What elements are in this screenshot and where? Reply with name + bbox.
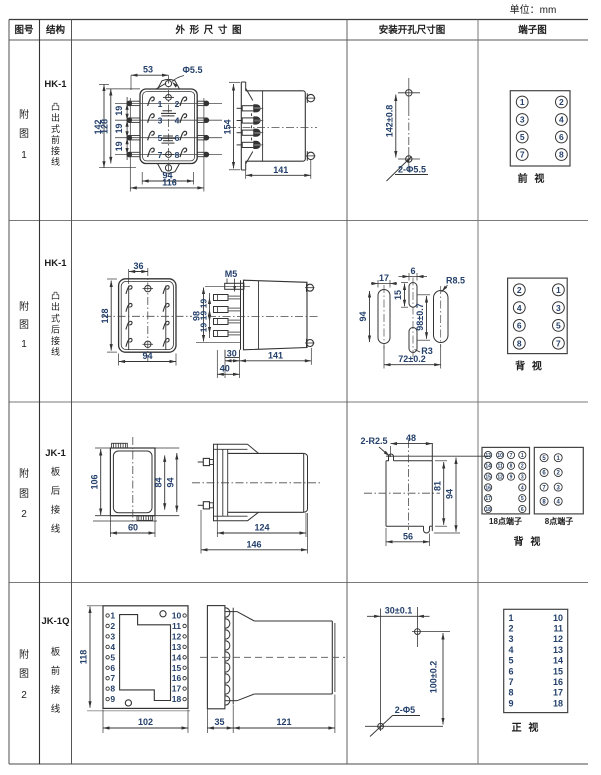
svg-text:128: 128: [100, 308, 110, 323]
svg-text:2: 2: [559, 97, 564, 107]
svg-text:102: 102: [138, 717, 153, 727]
svg-text:94: 94: [358, 311, 368, 321]
svg-text:9: 9: [510, 475, 513, 481]
svg-text:图: 图: [19, 128, 29, 140]
svg-text:35: 35: [214, 717, 224, 727]
svg-text:3: 3: [509, 634, 514, 644]
svg-text:13: 13: [553, 645, 563, 655]
svg-text:凸: 凸: [51, 102, 60, 112]
svg-text:5: 5: [520, 132, 525, 142]
svg-text:19: 19: [114, 106, 124, 116]
svg-text:30: 30: [227, 348, 237, 358]
svg-text:15: 15: [393, 290, 403, 300]
svg-text:4: 4: [175, 116, 180, 126]
svg-text:前 视: 前 视: [518, 172, 547, 185]
svg-text:1: 1: [21, 339, 27, 350]
svg-text:94: 94: [166, 477, 176, 487]
svg-text:4: 4: [517, 303, 522, 313]
svg-text:84: 84: [153, 477, 163, 487]
svg-text:凸: 凸: [51, 291, 60, 301]
svg-text:8: 8: [509, 688, 514, 698]
svg-text:5: 5: [556, 321, 561, 331]
svg-text:72±0.2: 72±0.2: [398, 354, 425, 364]
svg-text:14: 14: [172, 652, 182, 662]
svg-text:94: 94: [445, 489, 455, 499]
svg-text:141: 141: [273, 165, 288, 175]
svg-text:116: 116: [162, 178, 177, 188]
svg-text:端子图: 端子图: [518, 24, 547, 36]
svg-text:1: 1: [21, 150, 27, 161]
svg-text:2: 2: [110, 621, 115, 631]
svg-text:2: 2: [517, 285, 522, 295]
svg-text:外 形 尺 寸 图: 外 形 尺 寸 图: [174, 24, 242, 36]
svg-text:附: 附: [19, 108, 29, 121]
svg-text:146: 146: [246, 539, 261, 549]
svg-text:16: 16: [553, 677, 563, 687]
svg-text:2-Φ5: 2-Φ5: [395, 705, 415, 715]
svg-text:18: 18: [485, 507, 491, 513]
svg-text:11: 11: [553, 624, 563, 634]
svg-text:16: 16: [485, 485, 491, 491]
svg-text:12: 12: [497, 475, 503, 481]
svg-text:1: 1: [509, 613, 514, 623]
svg-text:40: 40: [220, 364, 230, 374]
svg-text:2: 2: [521, 464, 524, 470]
svg-text:17: 17: [379, 273, 389, 283]
svg-text:接: 接: [51, 684, 61, 696]
svg-text:背 视: 背 视: [514, 535, 543, 548]
svg-text:9: 9: [110, 694, 115, 704]
svg-text:10: 10: [497, 453, 503, 459]
svg-text:14: 14: [553, 656, 563, 666]
svg-text:2: 2: [509, 624, 514, 634]
svg-text:7: 7: [110, 673, 115, 683]
svg-text:接: 接: [51, 145, 60, 156]
svg-text:5: 5: [110, 652, 115, 662]
svg-text:48: 48: [406, 433, 416, 443]
svg-text:13: 13: [172, 642, 182, 652]
svg-text:8点端子: 8点端子: [545, 516, 573, 526]
svg-text:8: 8: [559, 150, 564, 160]
svg-text:接: 接: [51, 335, 60, 346]
svg-text:附: 附: [19, 300, 29, 313]
svg-text:8: 8: [517, 338, 522, 348]
svg-text:3: 3: [520, 115, 525, 125]
svg-text:6: 6: [521, 507, 524, 513]
svg-text:图号: 图号: [14, 25, 34, 36]
svg-text:1: 1: [520, 97, 525, 107]
svg-text:15: 15: [172, 663, 182, 673]
svg-text:17: 17: [553, 688, 563, 698]
svg-text:出: 出: [51, 112, 60, 123]
svg-text:53: 53: [143, 65, 153, 75]
svg-text:13: 13: [485, 453, 491, 459]
svg-text:图: 图: [19, 488, 29, 500]
svg-text:1: 1: [110, 611, 115, 621]
svg-text:前: 前: [51, 665, 61, 677]
svg-text:2-Φ5.5: 2-Φ5.5: [398, 165, 426, 175]
svg-text:M5: M5: [225, 269, 238, 279]
svg-text:Φ5.5: Φ5.5: [183, 65, 203, 75]
svg-text:正 视: 正 视: [512, 721, 541, 734]
svg-text:8: 8: [510, 464, 513, 470]
svg-text:图: 图: [19, 668, 29, 680]
svg-text:2-R2.5: 2-R2.5: [360, 436, 387, 446]
svg-text:5: 5: [509, 656, 514, 666]
svg-text:18: 18: [553, 698, 563, 708]
svg-text:3: 3: [158, 116, 163, 126]
svg-text:15: 15: [553, 666, 563, 676]
svg-text:98±0.7: 98±0.7: [415, 303, 425, 330]
svg-text:8: 8: [110, 684, 115, 694]
svg-text:12: 12: [172, 631, 182, 641]
svg-text:1: 1: [158, 99, 163, 109]
svg-text:2: 2: [21, 690, 27, 701]
svg-text:后: 后: [51, 325, 60, 335]
svg-text:18: 18: [172, 694, 182, 704]
svg-text:1: 1: [556, 285, 561, 295]
svg-text:6: 6: [509, 666, 514, 676]
svg-text:式: 式: [51, 123, 60, 134]
svg-text:前: 前: [51, 134, 60, 145]
svg-text:141: 141: [268, 350, 283, 360]
svg-text:94: 94: [142, 351, 152, 361]
svg-text:7: 7: [509, 677, 514, 687]
svg-text:124: 124: [254, 523, 269, 533]
svg-text:线: 线: [51, 346, 60, 357]
svg-text:7: 7: [520, 150, 525, 160]
svg-text:18点端子: 18点端子: [489, 516, 522, 526]
svg-text:4: 4: [509, 645, 514, 655]
svg-text:3: 3: [556, 303, 561, 313]
svg-text:19: 19: [114, 141, 124, 151]
svg-text:板: 板: [51, 646, 61, 658]
svg-text:19: 19: [198, 323, 208, 333]
svg-text:背 视: 背 视: [515, 360, 544, 373]
svg-text:安装开孔尺寸图: 安装开孔尺寸图: [379, 24, 446, 36]
svg-text:19: 19: [198, 311, 208, 321]
svg-text:4: 4: [559, 115, 564, 125]
svg-text:81: 81: [432, 481, 442, 491]
svg-text:JK-1Q: JK-1Q: [42, 616, 70, 627]
svg-text:R8.5: R8.5: [446, 276, 465, 286]
svg-text:100±0.2: 100±0.2: [429, 661, 439, 693]
svg-text:19: 19: [114, 123, 124, 133]
svg-text:出: 出: [51, 301, 60, 312]
svg-text:6: 6: [110, 663, 115, 673]
svg-text:4: 4: [110, 642, 115, 652]
svg-text:106: 106: [89, 474, 99, 489]
svg-text:接: 接: [51, 504, 61, 516]
svg-text:16: 16: [172, 673, 182, 683]
svg-text:3: 3: [110, 631, 115, 641]
svg-text:板: 板: [51, 466, 61, 478]
svg-text:HK-1: HK-1: [44, 79, 67, 90]
svg-text:6: 6: [410, 266, 415, 276]
svg-text:7: 7: [158, 150, 163, 160]
svg-text:7: 7: [556, 338, 561, 348]
svg-text:后: 后: [51, 486, 61, 497]
svg-text:56: 56: [403, 531, 413, 541]
svg-text:附: 附: [19, 467, 29, 480]
svg-text:17: 17: [485, 496, 491, 502]
svg-text:JK-1: JK-1: [45, 448, 66, 459]
svg-text:4: 4: [521, 485, 524, 491]
svg-text:11: 11: [172, 621, 181, 631]
svg-text:11: 11: [497, 464, 503, 470]
svg-text:6: 6: [517, 321, 522, 331]
svg-text:30±0.1: 30±0.1: [385, 605, 412, 615]
svg-text:14: 14: [485, 464, 491, 470]
svg-text:15: 15: [485, 475, 491, 481]
svg-text:60: 60: [128, 523, 138, 533]
svg-text:10: 10: [172, 611, 182, 621]
svg-text:36: 36: [133, 261, 143, 271]
svg-text:附: 附: [19, 648, 29, 661]
svg-text:HK-1: HK-1: [44, 258, 67, 269]
svg-text:2: 2: [21, 509, 27, 520]
svg-text:19: 19: [198, 299, 208, 309]
svg-text:式: 式: [51, 312, 60, 323]
svg-text:结构: 结构: [45, 24, 66, 36]
svg-text:线: 线: [51, 523, 61, 535]
svg-text:3: 3: [521, 475, 524, 481]
svg-text:1: 1: [521, 453, 524, 459]
svg-text:121: 121: [276, 717, 291, 727]
svg-text:12: 12: [553, 634, 563, 644]
svg-text:17: 17: [172, 684, 182, 694]
svg-text:154: 154: [222, 119, 232, 134]
svg-text:128: 128: [100, 119, 110, 134]
svg-text:142±0.8: 142±0.8: [385, 105, 395, 137]
svg-text:线: 线: [51, 156, 60, 167]
svg-text:图: 图: [19, 319, 29, 331]
svg-text:7: 7: [510, 453, 513, 459]
svg-text:5: 5: [521, 496, 524, 502]
svg-text:9: 9: [509, 698, 514, 708]
svg-text:8: 8: [175, 150, 180, 160]
svg-text:线: 线: [51, 703, 61, 715]
svg-text:118: 118: [79, 650, 89, 665]
svg-text:10: 10: [553, 613, 563, 623]
svg-text:6: 6: [559, 132, 564, 142]
svg-text:单位：mm: 单位：mm: [510, 3, 557, 16]
svg-text:2: 2: [175, 99, 180, 109]
